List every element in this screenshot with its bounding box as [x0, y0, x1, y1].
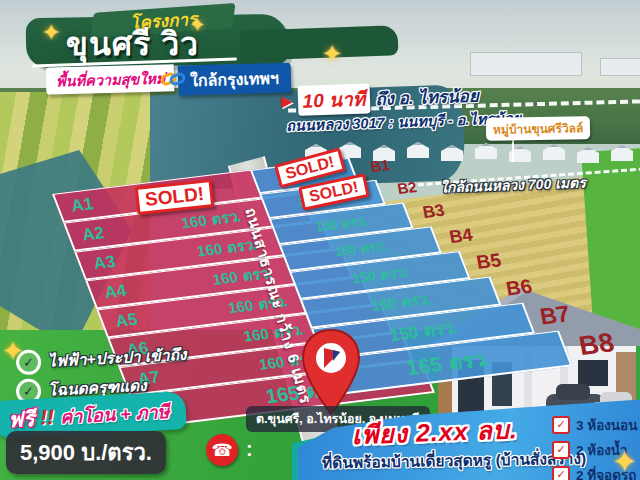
plot-id: A1: [56, 192, 109, 217]
subtitle-right-box: ใกล้กรุงเทพฯ: [178, 63, 292, 96]
price-per-sqw-box: 5,900 บ./ตรว.: [6, 431, 166, 474]
sparkle-icon: ✦: [190, 14, 205, 36]
sparkle-icon: ✦: [612, 444, 637, 479]
title-banner-streak: [240, 25, 399, 60]
subtitle-left-label: พื้นที่ความสุขใหม่: [56, 67, 166, 93]
arrow-icon: ▶: [281, 92, 293, 110]
plot-id: B4: [446, 225, 477, 248]
price-colon: :: [246, 438, 253, 461]
house-feature-bedrooms: ✓ 3 ห้องนอน: [552, 414, 637, 436]
free-bang: !!: [40, 405, 55, 430]
chain-link-icon: [160, 68, 187, 95]
village-label: หมู่บ้านขุนศรีวิลล์: [493, 121, 584, 137]
plot-id: B3: [419, 201, 448, 223]
plot-id: B1: [367, 156, 392, 175]
factory-building: [470, 52, 582, 76]
subtitle-right-label: ใกล้กรุงเทพฯ: [190, 65, 280, 92]
plot-id: B6: [502, 275, 536, 300]
house-feature-label: 3 ห้องนอน: [576, 414, 637, 436]
phone-icon: ☎: [206, 434, 238, 466]
checkbox-icon: ✓: [552, 466, 570, 480]
subtitle-left-box: พื้นที่ความสุขใหม่: [46, 64, 174, 94]
plot-id: A4: [89, 279, 142, 304]
sparkle-icon: ✦: [2, 336, 24, 367]
free-items: ค่าโอน + ภาษี: [59, 396, 170, 431]
checkbox-icon: ✓: [552, 441, 570, 459]
sparkle-icon: ✦: [322, 40, 342, 68]
village-label-box: หมู่บ้านขุนศรีวิลล์: [486, 116, 591, 141]
factory-building: [600, 58, 640, 76]
village-pointer-line: [512, 140, 514, 162]
plot-id: A5: [100, 308, 153, 333]
offer-description: ที่ดินพร้อมบ้านเดี่ยวสุดหรู (บ้านสั่งสร้…: [322, 446, 587, 476]
plot-id: B5: [473, 250, 505, 274]
checkbox-icon: ✓: [552, 416, 570, 434]
plot-id: A3: [78, 250, 131, 275]
real-estate-poster: { "header": { "ribbon": "โครงการ", "titl…: [0, 0, 640, 480]
sparkle-icon: ✦: [42, 20, 60, 46]
plot-id: B2: [394, 178, 419, 197]
plot-id: A2: [67, 221, 120, 246]
